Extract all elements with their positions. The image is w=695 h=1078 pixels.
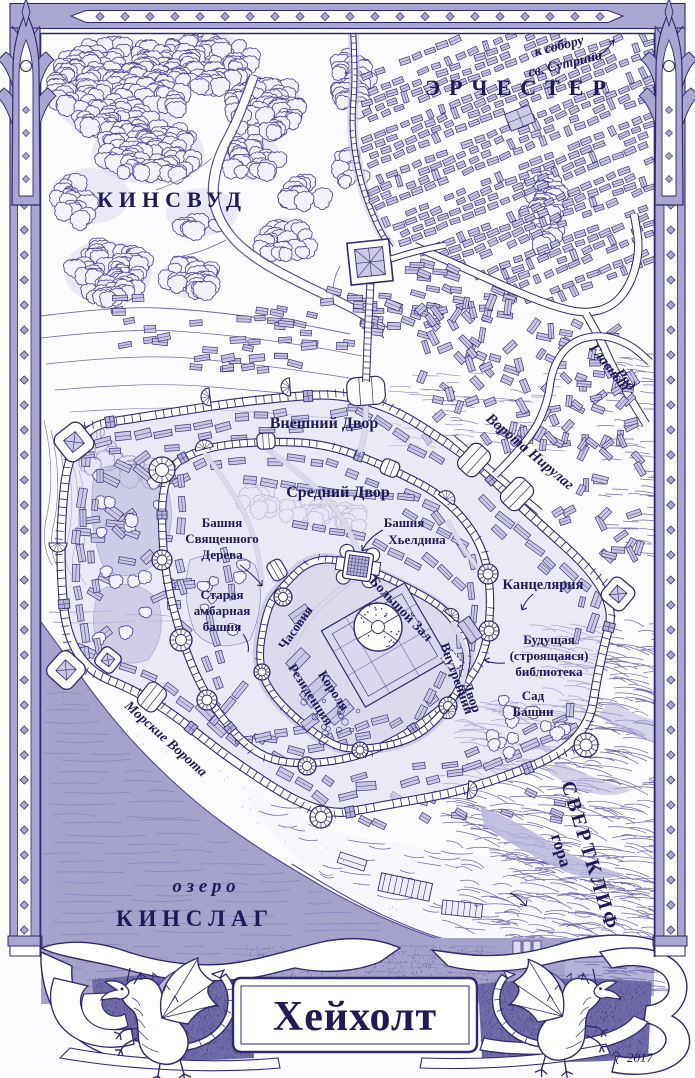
svg-text:библиотека: библиотека: [515, 664, 583, 679]
svg-text:Внешний Двор: Внешний Двор: [270, 415, 379, 432]
svg-text:Канцелярия: Канцелярия: [503, 577, 584, 593]
svg-text:Башни: Башни: [512, 704, 554, 719]
svg-text:башня: башня: [203, 619, 242, 634]
svg-text:Будущая: Будущая: [523, 632, 575, 647]
svg-text:Башня: Башня: [202, 515, 243, 530]
svg-text:Башня: Башня: [384, 515, 425, 530]
svg-text:КИНСВУД: КИНСВУД: [97, 187, 247, 212]
svg-text:амбарная: амбарная: [194, 603, 251, 618]
svg-text:Священного: Священного: [185, 531, 259, 546]
svg-text:2017: 2017: [627, 1050, 654, 1065]
svg-text:Старая: Старая: [200, 587, 243, 602]
svg-text:Хейхолт: Хейхолт: [273, 994, 437, 1040]
svg-text:ЭРЧЕСТЕР: ЭРЧЕСТЕР: [425, 75, 615, 100]
svg-text:Средний Двор: Средний Двор: [286, 484, 390, 501]
svg-text:Дерева: Дерева: [201, 547, 243, 562]
svg-text:К И Н С Л А Г: К И Н С Л А Г: [116, 906, 268, 931]
svg-text:о з е р о: о з е р о: [172, 876, 235, 897]
svg-text:Хьелдина: Хьелдина: [388, 532, 446, 547]
svg-text:Сад: Сад: [522, 688, 545, 703]
svg-text:(строящаяся): (строящаяся): [510, 648, 589, 663]
